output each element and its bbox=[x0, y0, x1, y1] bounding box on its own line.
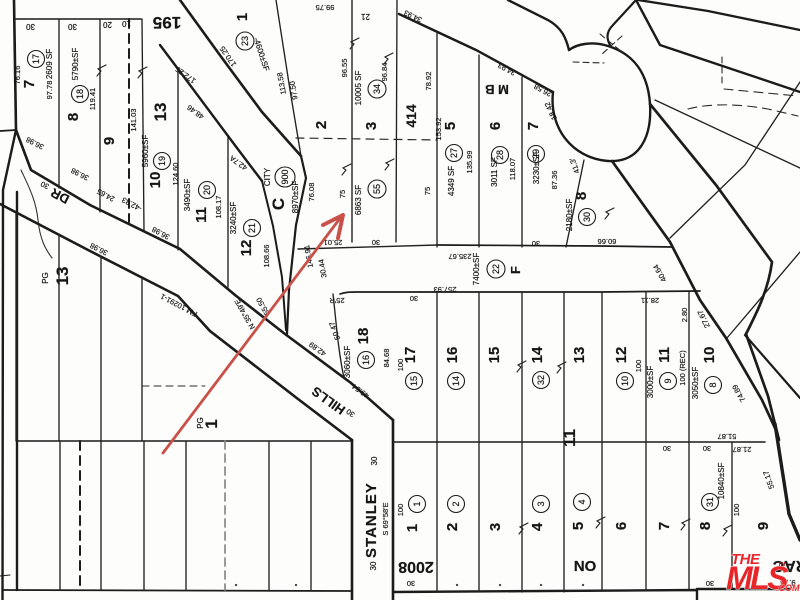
svg-text:18: 18 bbox=[75, 89, 85, 99]
svg-text:9: 9 bbox=[755, 522, 772, 530]
svg-text:30: 30 bbox=[532, 239, 540, 248]
svg-text:5960±SF: 5960±SF bbox=[141, 135, 150, 168]
svg-text:100: 100 bbox=[396, 504, 405, 517]
svg-text:2.80: 2.80 bbox=[680, 308, 689, 323]
svg-text:1: 1 bbox=[404, 524, 421, 532]
svg-text:30: 30 bbox=[663, 444, 671, 453]
svg-text:12: 12 bbox=[613, 347, 630, 364]
svg-text:M B: M B bbox=[485, 82, 509, 97]
svg-text:10: 10 bbox=[147, 172, 164, 189]
svg-text:3050±SF: 3050±SF bbox=[691, 367, 700, 400]
svg-text:4: 4 bbox=[577, 499, 587, 504]
svg-text:1: 1 bbox=[412, 501, 422, 506]
svg-text:5: 5 bbox=[442, 122, 459, 130]
svg-text:99.75: 99.75 bbox=[316, 3, 335, 12]
svg-text:414: 414 bbox=[403, 104, 419, 128]
svg-text:51.87: 51.87 bbox=[718, 432, 737, 441]
svg-text:ON: ON bbox=[574, 557, 597, 574]
svg-text:30: 30 bbox=[410, 294, 418, 303]
svg-text:20: 20 bbox=[202, 185, 212, 195]
svg-text:195: 195 bbox=[153, 13, 181, 32]
svg-text:15: 15 bbox=[486, 347, 503, 364]
svg-text:141.03: 141.03 bbox=[129, 109, 138, 132]
svg-text:3240±SF: 3240±SF bbox=[229, 202, 238, 235]
svg-text:75: 75 bbox=[423, 187, 432, 195]
svg-text:F: F bbox=[508, 266, 523, 274]
svg-text:30: 30 bbox=[582, 212, 592, 222]
svg-text:30: 30 bbox=[26, 22, 35, 31]
svg-text:11: 11 bbox=[560, 429, 579, 447]
svg-text:11: 11 bbox=[193, 207, 210, 223]
svg-text:PG: PG bbox=[41, 272, 50, 284]
svg-text:8: 8 bbox=[573, 192, 590, 200]
svg-text:17: 17 bbox=[31, 54, 41, 64]
svg-text:119.41: 119.41 bbox=[88, 88, 97, 110]
svg-text:2: 2 bbox=[451, 501, 461, 506]
svg-text:135.99: 135.99 bbox=[465, 151, 474, 174]
svg-text:30: 30 bbox=[372, 238, 380, 247]
svg-text:TM: TM bbox=[778, 562, 786, 568]
svg-text:2180±SF: 2180±SF bbox=[565, 199, 574, 232]
svg-text:2609 SF: 2609 SF bbox=[45, 49, 54, 79]
svg-text:2: 2 bbox=[313, 121, 330, 129]
svg-text:15: 15 bbox=[409, 376, 419, 386]
svg-text:3: 3 bbox=[363, 122, 380, 130]
svg-text:12: 12 bbox=[238, 240, 255, 257]
svg-text:18: 18 bbox=[355, 328, 372, 345]
svg-text:3: 3 bbox=[536, 501, 546, 506]
svg-text:1: 1 bbox=[202, 419, 221, 428]
svg-text:17: 17 bbox=[402, 347, 419, 364]
svg-text:10: 10 bbox=[620, 376, 630, 386]
svg-text:30: 30 bbox=[407, 579, 415, 588]
svg-text:11: 11 bbox=[656, 347, 673, 363]
svg-text:16: 16 bbox=[361, 355, 371, 365]
svg-text:3: 3 bbox=[487, 523, 504, 531]
svg-text:30: 30 bbox=[706, 579, 714, 588]
svg-text:.COM: .COM bbox=[776, 583, 800, 593]
svg-text:60.66: 60.66 bbox=[598, 237, 617, 246]
svg-text:25.01: 25.01 bbox=[324, 238, 343, 247]
svg-text:6: 6 bbox=[487, 122, 504, 130]
svg-text:1: 1 bbox=[234, 13, 251, 21]
svg-text:6863 SF: 6863 SF bbox=[354, 185, 363, 215]
svg-text:10005 SF: 10005 SF bbox=[354, 71, 363, 106]
svg-text:96.55: 96.55 bbox=[340, 59, 349, 78]
svg-text:13: 13 bbox=[151, 103, 170, 122]
svg-text:S 69°58'E: S 69°58'E bbox=[381, 502, 390, 535]
svg-text:124.60: 124.60 bbox=[171, 163, 180, 186]
svg-text:13: 13 bbox=[571, 347, 588, 364]
svg-text:22: 22 bbox=[491, 264, 501, 274]
svg-text:27: 27 bbox=[449, 148, 459, 158]
svg-text:21: 21 bbox=[247, 223, 257, 233]
svg-text:78.92: 78.92 bbox=[424, 72, 433, 91]
svg-text:19: 19 bbox=[157, 156, 167, 166]
svg-text:7: 7 bbox=[21, 80, 38, 88]
svg-text:84.68: 84.68 bbox=[382, 349, 391, 368]
svg-text:14: 14 bbox=[529, 346, 546, 363]
svg-text:76.08: 76.08 bbox=[307, 183, 316, 202]
svg-text:108.66: 108.66 bbox=[262, 245, 271, 268]
svg-text:8970±SF: 8970±SF bbox=[291, 181, 300, 214]
svg-text:100: 100 bbox=[634, 360, 643, 373]
svg-text:30: 30 bbox=[369, 561, 378, 570]
svg-text:100 (REC): 100 (REC) bbox=[678, 350, 687, 386]
svg-text:7: 7 bbox=[656, 522, 673, 530]
svg-text:10840±SF: 10840±SF bbox=[717, 462, 726, 499]
svg-text:3490±SF: 3490±SF bbox=[183, 179, 192, 212]
svg-text:30: 30 bbox=[370, 456, 379, 465]
svg-text:900: 900 bbox=[280, 169, 290, 184]
svg-text:34: 34 bbox=[372, 84, 382, 94]
svg-text:9: 9 bbox=[101, 137, 118, 145]
svg-text:10: 10 bbox=[122, 19, 131, 28]
svg-text:55: 55 bbox=[372, 184, 382, 194]
svg-text:7400±SF: 7400±SF bbox=[472, 253, 481, 286]
svg-text:30: 30 bbox=[68, 22, 77, 31]
svg-text:8: 8 bbox=[708, 382, 718, 387]
svg-text:100: 100 bbox=[732, 504, 741, 517]
svg-text:97.78: 97.78 bbox=[45, 81, 54, 100]
svg-text:96.84: 96.84 bbox=[380, 63, 389, 82]
svg-text:3000±SF: 3000±SF bbox=[646, 366, 655, 399]
svg-text:108.17: 108.17 bbox=[214, 196, 223, 219]
svg-text:3230±SF: 3230±SF bbox=[532, 152, 541, 185]
svg-text:30: 30 bbox=[703, 444, 711, 453]
svg-text:3060±SF: 3060±SF bbox=[343, 346, 352, 379]
svg-text:13: 13 bbox=[53, 267, 72, 286]
svg-text:31: 31 bbox=[705, 497, 715, 507]
svg-text:3011 SF: 3011 SF bbox=[490, 157, 499, 187]
svg-text:20: 20 bbox=[103, 20, 112, 29]
svg-text:75: 75 bbox=[338, 190, 347, 198]
svg-text:16: 16 bbox=[444, 347, 461, 364]
svg-text:4: 4 bbox=[529, 522, 546, 531]
svg-text:9: 9 bbox=[663, 378, 673, 383]
svg-text:14: 14 bbox=[451, 376, 461, 386]
svg-text:8: 8 bbox=[697, 522, 714, 530]
svg-text:5790±SF: 5790±SF bbox=[71, 48, 80, 81]
svg-text:76.16: 76.16 bbox=[13, 66, 22, 85]
svg-text:21: 21 bbox=[361, 12, 370, 21]
svg-text:118.07: 118.07 bbox=[508, 158, 517, 180]
svg-text:25'R: 25'R bbox=[329, 296, 345, 305]
svg-text:8: 8 bbox=[65, 113, 82, 121]
svg-text:6: 6 bbox=[613, 522, 630, 530]
svg-text:C: C bbox=[269, 198, 288, 210]
svg-text:2008: 2008 bbox=[398, 558, 434, 575]
svg-text:32: 32 bbox=[536, 375, 546, 385]
svg-text:10: 10 bbox=[701, 347, 718, 364]
svg-text:23: 23 bbox=[240, 36, 250, 46]
svg-text:2: 2 bbox=[444, 523, 461, 531]
svg-text:STANLEY: STANLEY bbox=[363, 482, 380, 558]
svg-text:4349 SF: 4349 SF bbox=[447, 166, 456, 196]
svg-text:5: 5 bbox=[570, 522, 587, 530]
svg-text:CITY: CITY bbox=[263, 167, 272, 186]
svg-text:87.36: 87.36 bbox=[550, 171, 559, 190]
svg-text:235.67: 235.67 bbox=[449, 252, 472, 261]
svg-text:28.11: 28.11 bbox=[641, 296, 659, 305]
svg-text:21.87: 21.87 bbox=[733, 445, 752, 454]
svg-text:7: 7 bbox=[525, 122, 542, 130]
